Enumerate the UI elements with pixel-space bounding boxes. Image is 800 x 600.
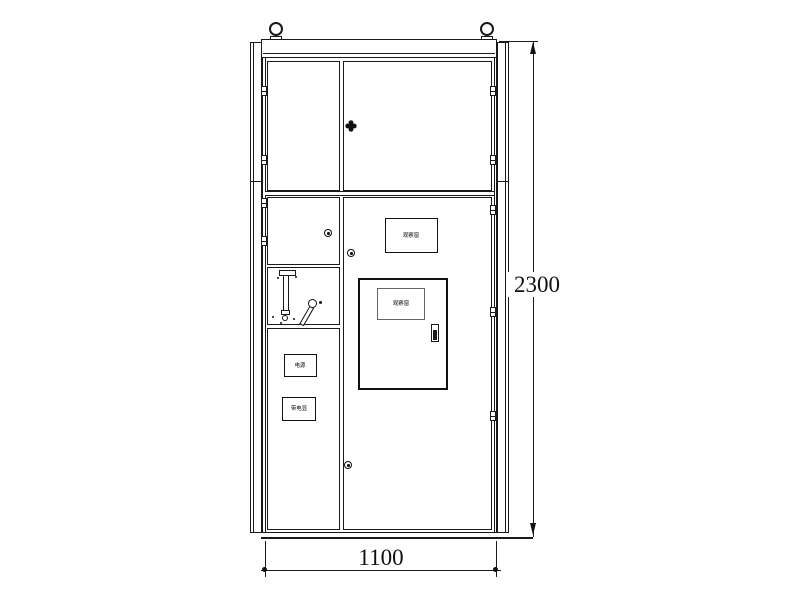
door-viewing-window: 观察窗 xyxy=(385,218,438,253)
main-door-knob-top-icon xyxy=(347,249,355,257)
side-panel-left xyxy=(250,42,262,533)
mechanism-dot xyxy=(277,277,279,279)
upper-right-door xyxy=(343,61,492,191)
hinge-icon xyxy=(490,155,496,165)
upper-left-door xyxy=(267,61,340,191)
main-door-knob-bottom-icon xyxy=(344,461,352,469)
hinge-icon xyxy=(490,205,496,215)
inner-door-window-label: 观察窗 xyxy=(393,301,409,306)
inner-door-latch-handle xyxy=(433,330,437,340)
mechanism-dot xyxy=(295,276,297,278)
hinge-icon xyxy=(261,198,267,208)
mechanism-dot xyxy=(293,318,295,320)
side-panel-right-inner-line xyxy=(505,43,506,532)
hinge-icon xyxy=(490,86,496,96)
height-dim-arrow-up-icon xyxy=(530,42,536,54)
width-dimension-label: 1100 xyxy=(331,545,431,570)
top-cap xyxy=(261,39,497,58)
top-cap-inner-line xyxy=(263,53,495,54)
height-dim-arrow-down-icon xyxy=(530,523,536,535)
hinge-icon xyxy=(261,86,267,96)
power-label: 电源 xyxy=(295,363,306,368)
frame-inner-line-right xyxy=(494,58,495,532)
hinge-icon xyxy=(261,155,267,165)
earthing-handle-shaft xyxy=(283,275,289,312)
hinge-icon xyxy=(261,236,267,246)
width-dim-end-dot xyxy=(493,567,498,572)
power-label-box: 电源 xyxy=(284,354,317,377)
hinge-icon xyxy=(490,307,496,317)
height-dimension-label: 2300 xyxy=(507,272,567,297)
section-divider xyxy=(265,191,494,196)
middle-left-door-knob-icon xyxy=(324,229,332,237)
cabinet-front-elevation-drawing: 电源 带电显 观察窗 观察窗 1100 2300 xyxy=(0,0,800,600)
width-dim-end-dot xyxy=(262,567,267,572)
door-viewing-window-label: 观察窗 xyxy=(403,233,419,238)
base-line xyxy=(261,537,533,539)
side-panel-left-joint xyxy=(250,181,262,182)
side-panel-left-inner-line xyxy=(253,43,254,532)
live-display-label-box: 带电显 xyxy=(282,397,316,421)
operating-lever-knob-icon xyxy=(308,299,317,308)
live-display-label: 带电显 xyxy=(291,406,307,411)
mechanism-dot xyxy=(280,322,282,324)
lifting-eye-right-icon xyxy=(480,22,494,36)
mechanism-port-icon xyxy=(282,315,288,321)
side-panel-right-joint xyxy=(497,181,509,182)
frame-inner-line-left xyxy=(265,58,266,532)
mechanism-dot xyxy=(272,316,274,318)
hinge-icon xyxy=(490,411,496,421)
cross-handle-icon xyxy=(349,124,353,128)
inner-door-window: 观察窗 xyxy=(377,288,425,320)
lever-pivot-dot xyxy=(319,301,322,304)
lifting-eye-left-icon xyxy=(269,22,283,36)
